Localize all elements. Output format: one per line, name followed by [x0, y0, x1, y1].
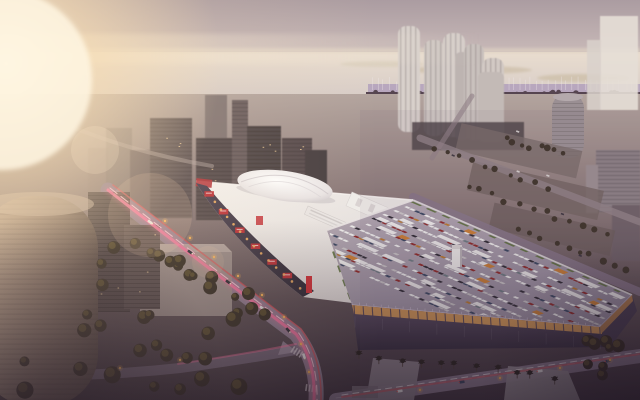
architectural-rendering	[0, 0, 640, 400]
